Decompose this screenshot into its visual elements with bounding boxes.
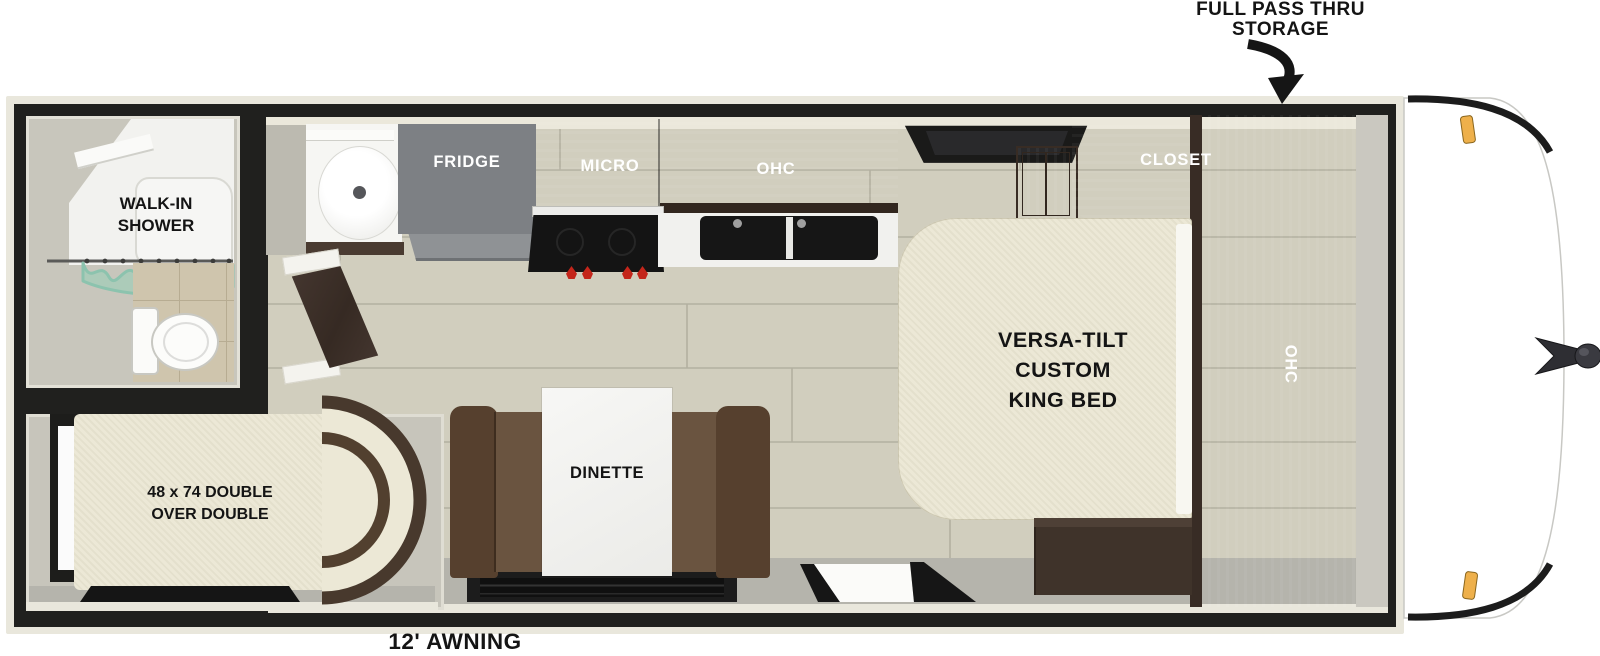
stove-burner-right xyxy=(608,228,636,256)
rv-floorplan-canvas: FRIDGE MICRO OHC CLOSET OHC VERSA-TILT C… xyxy=(0,0,1600,656)
fridge xyxy=(398,124,536,234)
bedside-cabinet-doors xyxy=(1022,152,1070,216)
dinette-bench-right-seat xyxy=(672,412,722,572)
micro-label: MICRO xyxy=(548,158,672,175)
stove-cooktop xyxy=(528,215,664,272)
bed-label: VERSA-TILT CUSTOM KING BED xyxy=(948,325,1178,415)
storage-callout-line1: FULL PASS THRU xyxy=(1158,0,1403,20)
bed-pillow-strip xyxy=(1176,224,1192,514)
kitchen-corner-wall xyxy=(264,125,312,255)
sink-drain xyxy=(353,186,366,199)
shower-label-line2: SHOWER xyxy=(71,215,240,237)
bed-label-line2: CUSTOM xyxy=(948,355,1178,385)
kitchen-sink-divider xyxy=(786,217,793,259)
dinette-bench-left-back xyxy=(450,406,498,578)
bunk-label-line1: 48 x 74 DOUBLE xyxy=(110,482,310,504)
right-interior-wall xyxy=(1356,115,1388,607)
ohc-kitchen-label: OHC xyxy=(700,161,852,178)
dinette-bench-left-seat xyxy=(494,412,544,572)
dinette-window-glass xyxy=(480,578,724,597)
front-cap xyxy=(1398,90,1600,642)
stove-burner-left xyxy=(556,228,584,256)
bathroom-bottom-wall xyxy=(14,386,266,414)
storage-arrow-icon xyxy=(1230,36,1320,106)
shower-label: WALK-IN SHOWER xyxy=(71,193,240,237)
dinette-label: DINETTE xyxy=(540,464,674,483)
toilet-seat-rim xyxy=(163,322,209,362)
awning-label: 12' AWNING xyxy=(340,629,570,655)
bed-foot-cabinet xyxy=(1034,518,1192,595)
bathroom-right-wall xyxy=(236,104,266,416)
bed-label-line3: KING BED xyxy=(948,385,1178,415)
fridge-front-panel xyxy=(406,234,534,261)
storage-callout: FULL PASS THRU STORAGE xyxy=(1158,0,1403,40)
shower-label-line1: WALK-IN xyxy=(71,193,240,215)
closet-label: CLOSET xyxy=(1106,152,1246,169)
dinette-bench-right-back xyxy=(716,406,770,578)
wardrobe-ohc-label: OHC xyxy=(1282,336,1299,392)
fridge-label: FRIDGE xyxy=(398,154,536,171)
vanity-shelf xyxy=(306,130,394,141)
bunk-base-step xyxy=(80,586,300,602)
faucet-left xyxy=(733,219,742,228)
wardrobe-column xyxy=(1190,115,1356,607)
bunk-label: 48 x 74 DOUBLE OVER DOUBLE xyxy=(110,482,310,526)
bathroom-interior: WALK-IN SHOWER xyxy=(26,116,240,388)
bunk-label-line2: OVER DOUBLE xyxy=(110,504,310,526)
bed-label-line1: VERSA-TILT xyxy=(948,325,1178,355)
front-cap-body xyxy=(1404,98,1564,618)
faucet-right xyxy=(797,219,806,228)
